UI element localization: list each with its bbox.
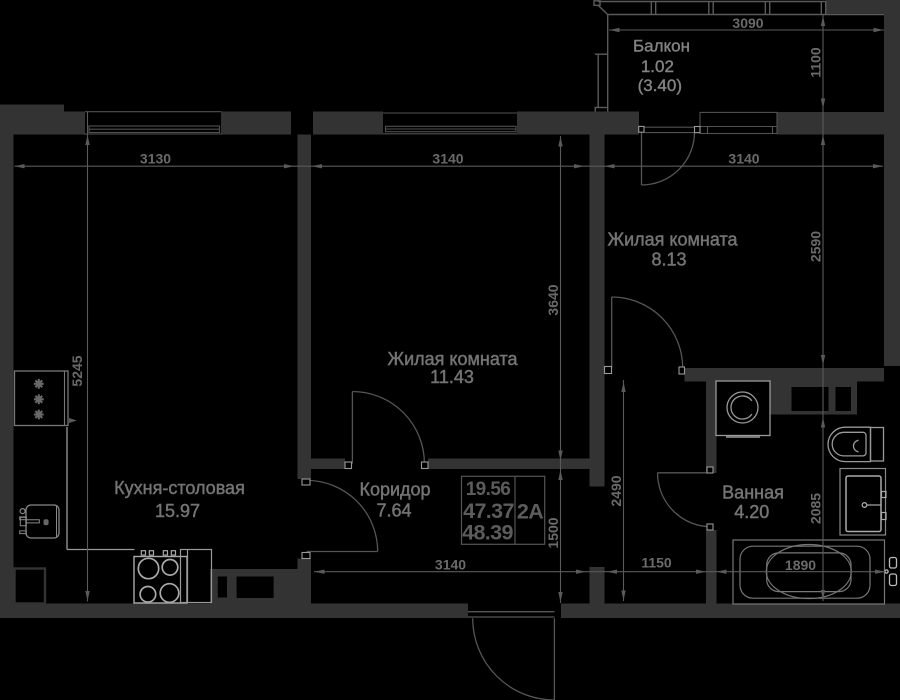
svg-text:15.97: 15.97 (155, 501, 200, 521)
svg-text:2А: 2А (517, 500, 543, 524)
svg-text:5245: 5245 (69, 355, 85, 386)
svg-text:1150: 1150 (641, 555, 672, 571)
svg-text:1100: 1100 (808, 47, 824, 78)
svg-text:47.37: 47.37 (463, 499, 514, 523)
svg-text:2490: 2490 (608, 475, 624, 506)
svg-text:48.39: 48.39 (462, 521, 513, 545)
svg-text:1890: 1890 (785, 557, 816, 573)
svg-text:3140: 3140 (435, 557, 466, 573)
svg-text:(3.40): (3.40) (638, 76, 682, 95)
svg-text:1.02: 1.02 (641, 57, 674, 76)
svg-text:4.20: 4.20 (734, 502, 769, 522)
svg-text:2590: 2590 (808, 231, 824, 262)
svg-text:19.56: 19.56 (466, 479, 511, 500)
svg-text:Балкон: Балкон (633, 37, 690, 56)
svg-text:Кухня-столовая: Кухня-столовая (114, 478, 245, 498)
svg-text:Ванная: Ванная (722, 483, 784, 503)
svg-text:2085: 2085 (808, 493, 824, 524)
svg-text:3640: 3640 (545, 284, 561, 315)
svg-text:7.64: 7.64 (376, 501, 411, 521)
svg-text:11.43: 11.43 (430, 367, 474, 387)
svg-text:Жилая комната: Жилая комната (607, 230, 738, 250)
svg-text:Жилая комната: Жилая комната (387, 349, 518, 369)
svg-text:8.13: 8.13 (651, 250, 686, 270)
svg-text:3140: 3140 (728, 151, 759, 167)
svg-text:3090: 3090 (732, 15, 763, 31)
svg-text:3140: 3140 (432, 151, 463, 167)
svg-text:Коридор: Коридор (359, 480, 430, 500)
svg-text:3130: 3130 (140, 151, 171, 167)
svg-text:1500: 1500 (545, 517, 561, 548)
